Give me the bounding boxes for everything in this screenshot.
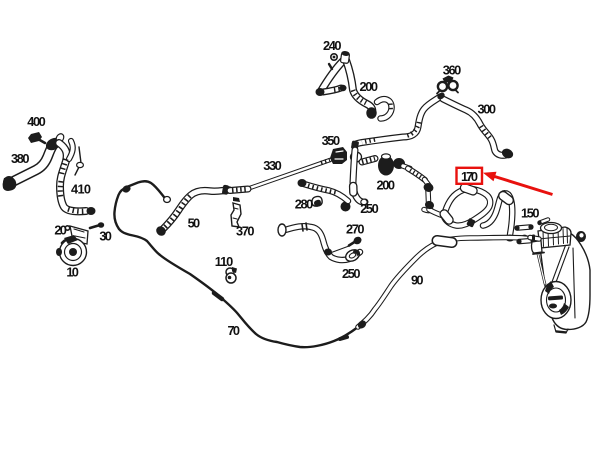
- svg-text:350: 350: [322, 133, 341, 148]
- svg-text:90: 90: [411, 273, 424, 288]
- svg-text:110: 110: [215, 254, 234, 269]
- svg-text:410: 410: [71, 182, 91, 197]
- svg-text:200: 200: [377, 177, 396, 192]
- svg-text:380: 380: [11, 151, 30, 166]
- svg-text:400: 400: [27, 114, 46, 129]
- svg-text:250: 250: [342, 266, 361, 281]
- svg-text:200: 200: [360, 79, 379, 94]
- svg-text:70: 70: [228, 323, 241, 338]
- svg-text:360: 360: [443, 63, 462, 78]
- svg-text:170: 170: [461, 169, 478, 184]
- svg-text:370: 370: [236, 224, 255, 239]
- svg-text:20: 20: [54, 223, 67, 238]
- svg-text:10: 10: [66, 265, 79, 280]
- svg-text:280: 280: [295, 196, 314, 211]
- svg-text:270: 270: [346, 222, 365, 237]
- svg-text:30: 30: [99, 229, 112, 244]
- svg-text:240: 240: [323, 38, 342, 53]
- svg-text:150: 150: [521, 206, 540, 221]
- svg-text:50: 50: [188, 215, 201, 230]
- svg-text:250: 250: [360, 201, 379, 216]
- svg-text:330: 330: [263, 158, 282, 173]
- svg-text:300: 300: [478, 101, 497, 116]
